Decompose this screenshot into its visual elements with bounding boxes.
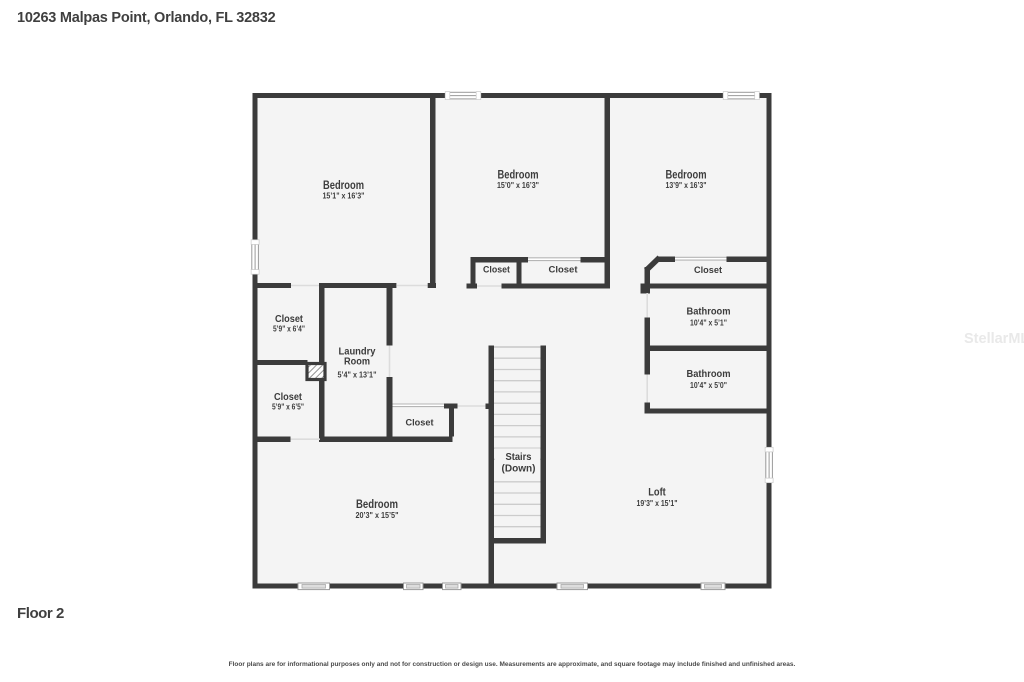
svg-text:5’9" x 6’4": 5’9" x 6’4" xyxy=(273,325,305,334)
svg-text:13’9" x 16’3": 13’9" x 16’3" xyxy=(666,181,707,190)
svg-text:Bedroom: Bedroom xyxy=(323,180,364,192)
svg-text:Stairs: Stairs xyxy=(506,452,532,463)
svg-text:Closet: Closet xyxy=(549,264,579,275)
svg-text:Bedroom: Bedroom xyxy=(666,170,707,182)
svg-text:19’3" x 15’1": 19’3" x 15’1" xyxy=(637,499,678,508)
svg-text:15’1" x 16’3": 15’1" x 16’3" xyxy=(323,192,365,201)
svg-text:(Down): (Down) xyxy=(502,463,536,474)
svg-text:10’4" x 5’0": 10’4" x 5’0" xyxy=(690,381,727,390)
svg-text:5’9" x 6’5": 5’9" x 6’5" xyxy=(272,403,304,412)
svg-text:Closet: Closet xyxy=(694,265,723,276)
svg-text:Room: Room xyxy=(344,356,370,367)
svg-text:Loft: Loft xyxy=(648,486,666,498)
svg-text:10’4" x 5’1": 10’4" x 5’1" xyxy=(690,319,727,328)
svg-text:Bedroom: Bedroom xyxy=(498,170,539,182)
svg-text:Closet: Closet xyxy=(406,417,435,428)
svg-text:5’4" x 13’1": 5’4" x 13’1" xyxy=(338,371,377,380)
svg-text:15’0" x 16’3": 15’0" x 16’3" xyxy=(497,181,539,190)
svg-text:20’3" x 15’5": 20’3" x 15’5" xyxy=(356,511,399,520)
svg-text:Closet: Closet xyxy=(483,264,511,275)
svg-text:Bedroom: Bedroom xyxy=(356,499,398,511)
svg-text:Closet: Closet xyxy=(274,392,302,403)
svg-text:Bathroom: Bathroom xyxy=(687,369,731,380)
svg-text:Closet: Closet xyxy=(275,314,303,325)
svg-text:Bathroom: Bathroom xyxy=(687,306,731,317)
